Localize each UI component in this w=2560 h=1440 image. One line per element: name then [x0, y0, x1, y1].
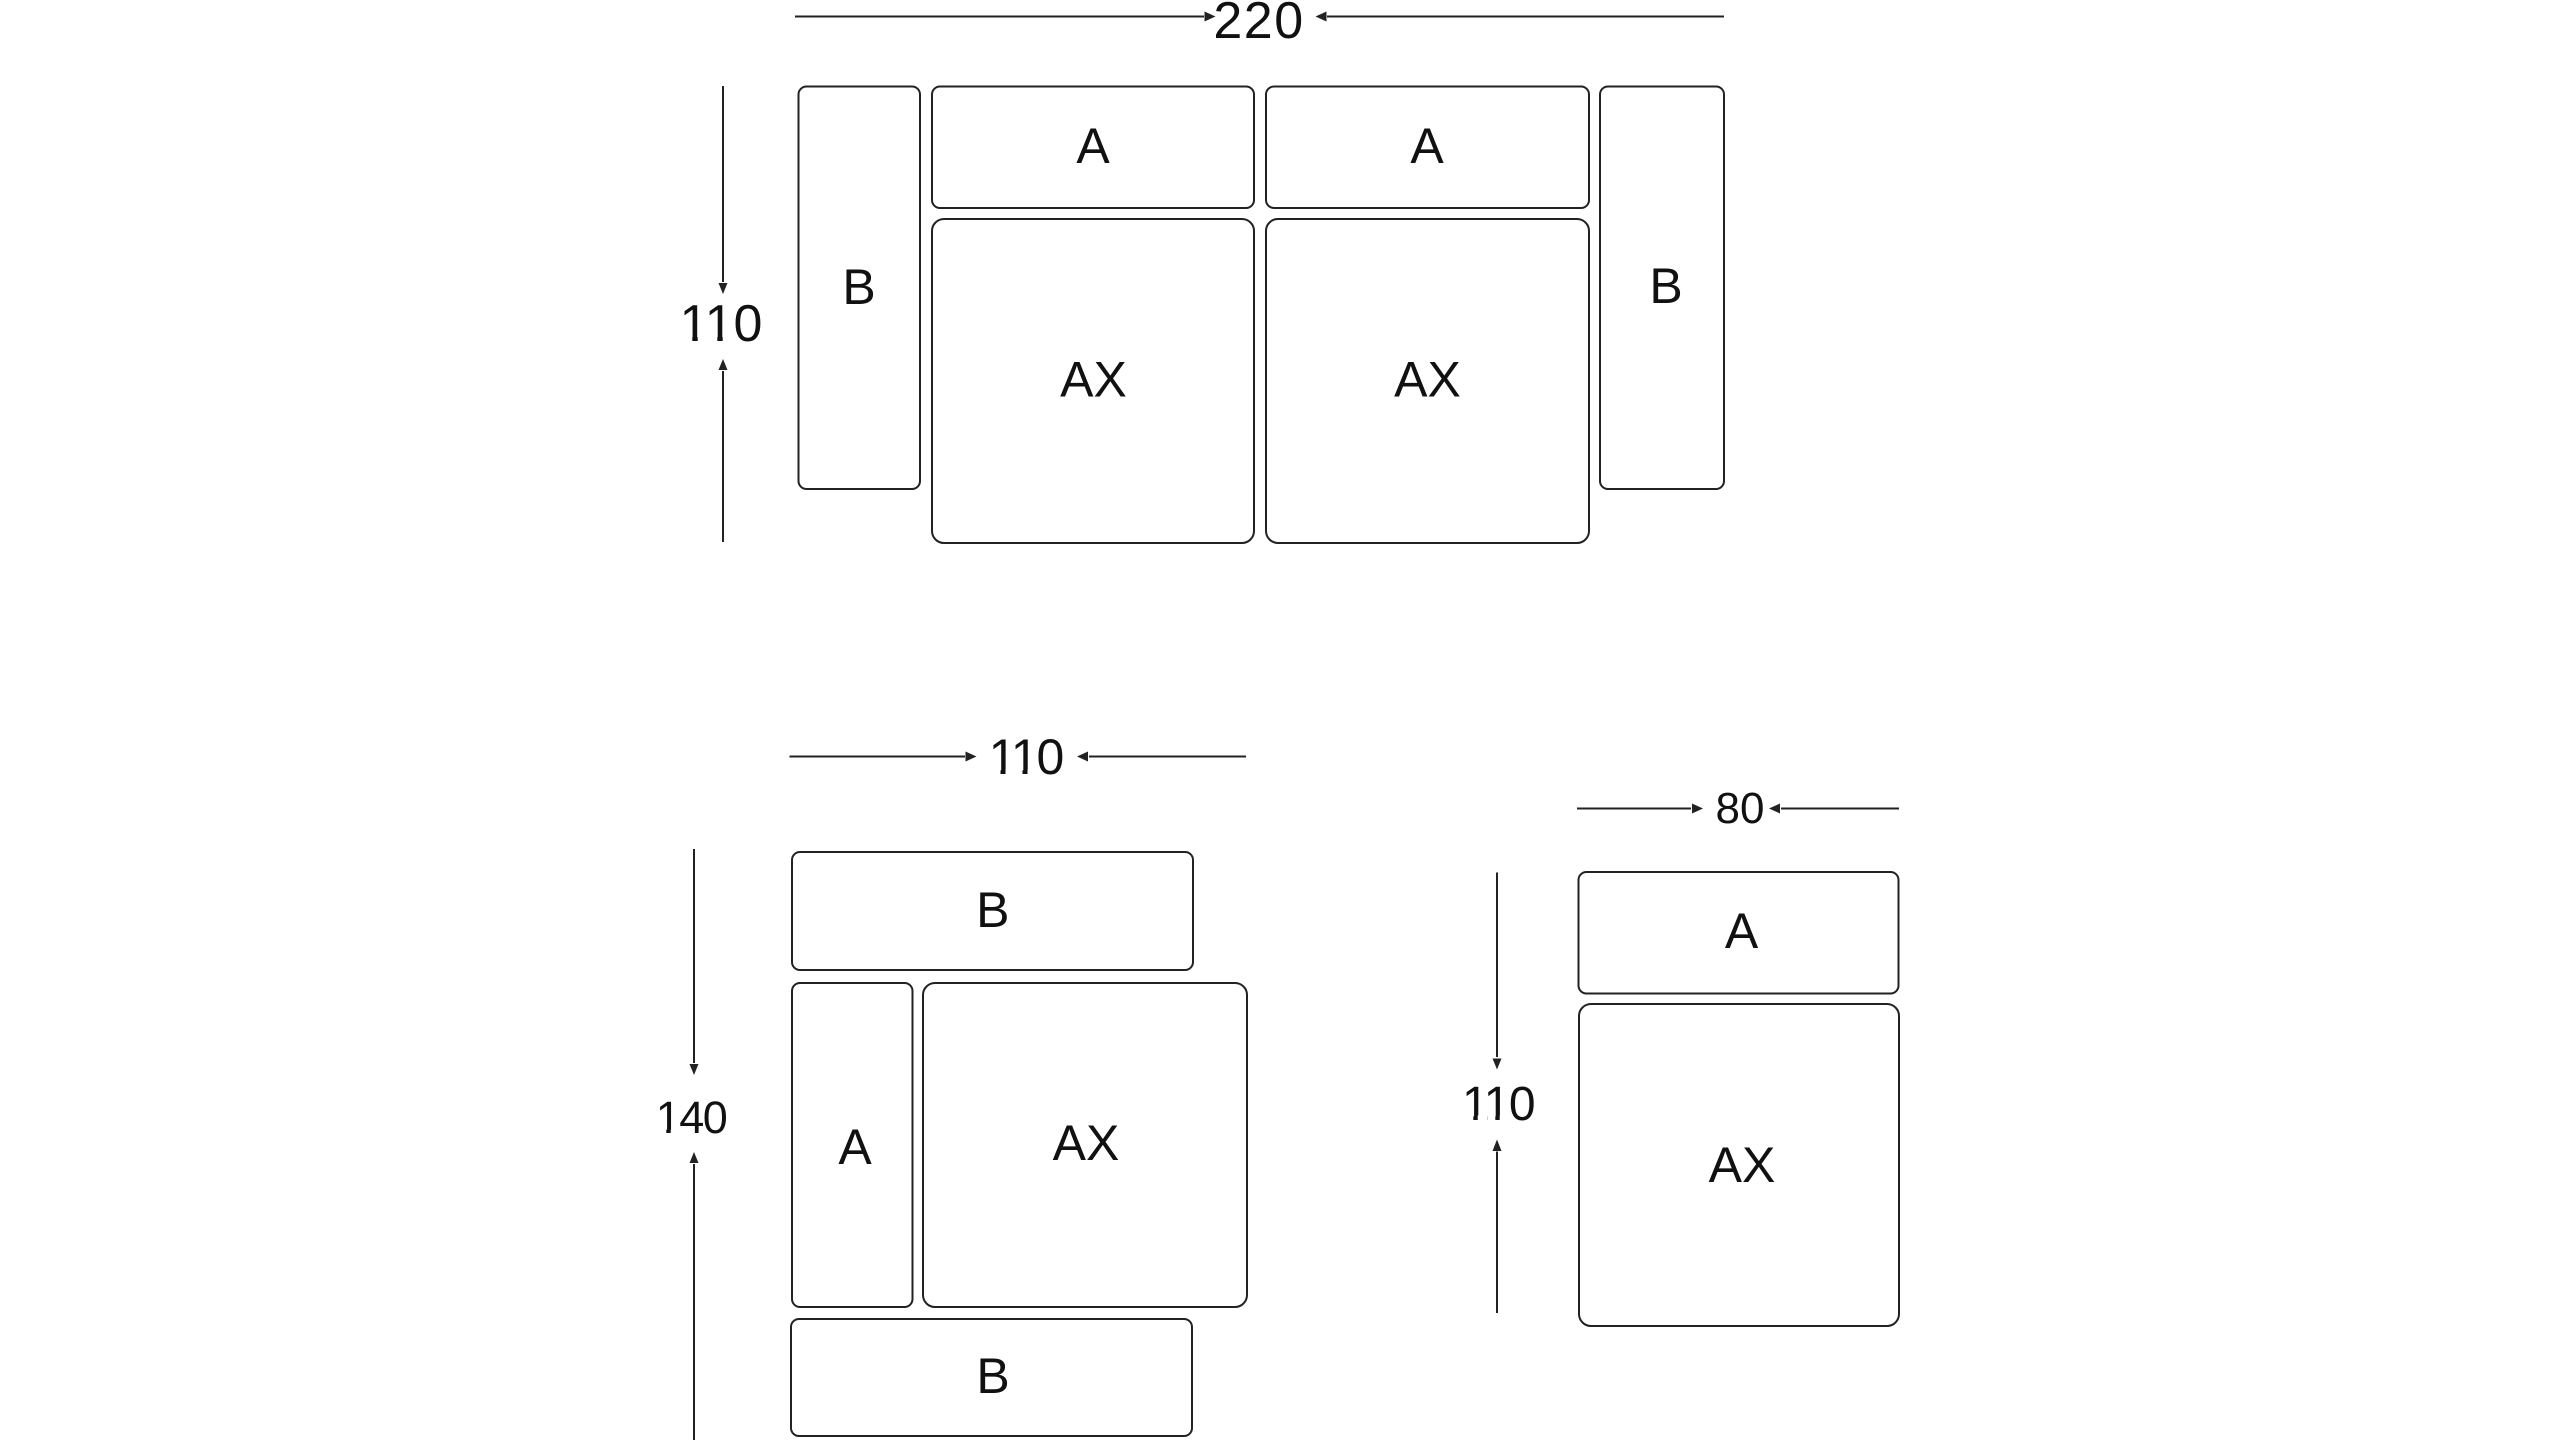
- svg-text:A: A: [1725, 903, 1759, 959]
- svg-text:110: 110: [680, 295, 763, 353]
- svg-text:140: 140: [656, 1092, 727, 1143]
- svg-text:110: 110: [989, 729, 1063, 785]
- svg-text:AX: AX: [1709, 1137, 1776, 1193]
- svg-text:A: A: [1410, 118, 1444, 174]
- svg-text:B: B: [976, 882, 1009, 938]
- svg-text:AX: AX: [1053, 1115, 1120, 1171]
- svg-text:A: A: [1076, 118, 1110, 174]
- svg-text:AX: AX: [1394, 352, 1461, 408]
- svg-text:220: 220: [1213, 0, 1304, 50]
- svg-text:A: A: [838, 1119, 872, 1175]
- svg-text:80: 80: [1716, 784, 1765, 833]
- svg-text:AX: AX: [1060, 352, 1127, 408]
- svg-text:B: B: [976, 1348, 1009, 1404]
- svg-text:110: 110: [1462, 1078, 1534, 1131]
- svg-text:B: B: [1649, 258, 1682, 314]
- svg-text:B: B: [842, 259, 875, 315]
